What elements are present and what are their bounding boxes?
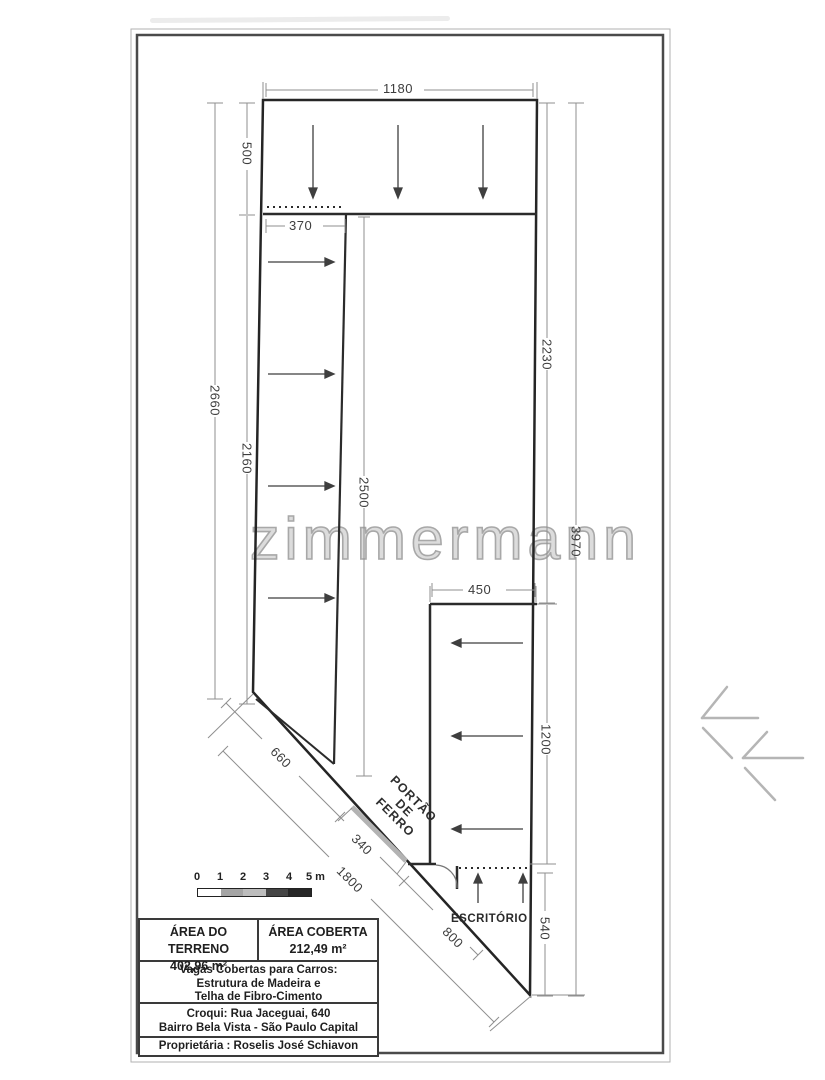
- scale-segment-2: [221, 889, 244, 896]
- info-table-areas-row: ÁREA DO TERRENO 402,96 m² ÁREA COBERTA 2…: [140, 920, 377, 962]
- scale-segment-1: [198, 889, 221, 896]
- structure-line2: Estrutura de Madeira e: [140, 978, 377, 992]
- scale-tick-1: 1: [217, 871, 223, 883]
- dim-label-diag-total: 1800: [331, 860, 370, 899]
- scanned-croqui-page: zimmermann: [0, 0, 825, 1080]
- scale-segment-3: [243, 889, 266, 896]
- scale-tick-0: 0: [194, 871, 200, 883]
- area-terreno-label: ÁREA DO TERRENO: [140, 924, 257, 958]
- dim-label-top-width: 1180: [383, 81, 413, 96]
- dim-label-office-width: 450: [468, 582, 491, 597]
- office-label: ESCRITÓRIO: [451, 913, 528, 925]
- dim-label-diag-upper: 660: [262, 738, 301, 777]
- dim-label-left-lower: 2160: [240, 439, 255, 479]
- area-terreno-cell: ÁREA DO TERRENO 402,96 m²: [140, 920, 259, 960]
- dim-label-left-total: 2660: [208, 381, 223, 421]
- dim-label-office-height: 1200: [539, 720, 554, 760]
- area-coberta-value: 212,49 m²: [259, 941, 377, 958]
- scale-bar: [197, 888, 312, 897]
- scale-tick-2: 2: [240, 871, 246, 883]
- iron-gate-label: PORTÃO DE FERRO: [363, 768, 444, 849]
- scale-tick-4: 4: [286, 871, 292, 883]
- owner-line: Proprietária : Roselis José Schiavon: [140, 1038, 377, 1054]
- scale-tick-5: 5 m: [306, 871, 325, 883]
- address-line2: Bairro Bela Vista - São Paulo Capital: [140, 1021, 377, 1035]
- dim-label-right-upper: 2230: [540, 335, 555, 375]
- address-line1: Croqui: Rua Jaceguai, 640: [140, 1007, 377, 1021]
- scale-tick-3: 3: [263, 871, 269, 883]
- info-table-owner-row: Proprietária : Roselis José Schiavon: [140, 1038, 377, 1055]
- labels-overlay: 1180 370 450 500 2660 2160 2500 2230 397…: [0, 0, 825, 1080]
- scale-segment-5: [288, 889, 311, 896]
- dim-label-right-total: 3970: [569, 522, 584, 562]
- scale-segment-4: [266, 889, 289, 896]
- dim-label-strip-height: 2500: [357, 473, 372, 513]
- dim-label-office-lower: 540: [538, 909, 553, 949]
- dim-label-top-height: 500: [240, 134, 255, 174]
- structure-line3: Telha de Fibro-Cimento: [140, 991, 377, 1005]
- dim-label-diag-gate: 340: [343, 825, 382, 864]
- info-table: ÁREA DO TERRENO 402,96 m² ÁREA COBERTA 2…: [138, 918, 379, 1057]
- dim-label-strip-width: 370: [289, 218, 312, 233]
- area-coberta-cell: ÁREA COBERTA 212,49 m²: [259, 920, 377, 960]
- area-coberta-label: ÁREA COBERTA: [259, 924, 377, 941]
- info-table-address-row: Croqui: Rua Jaceguai, 640 Bairro Bela Vi…: [140, 1004, 377, 1038]
